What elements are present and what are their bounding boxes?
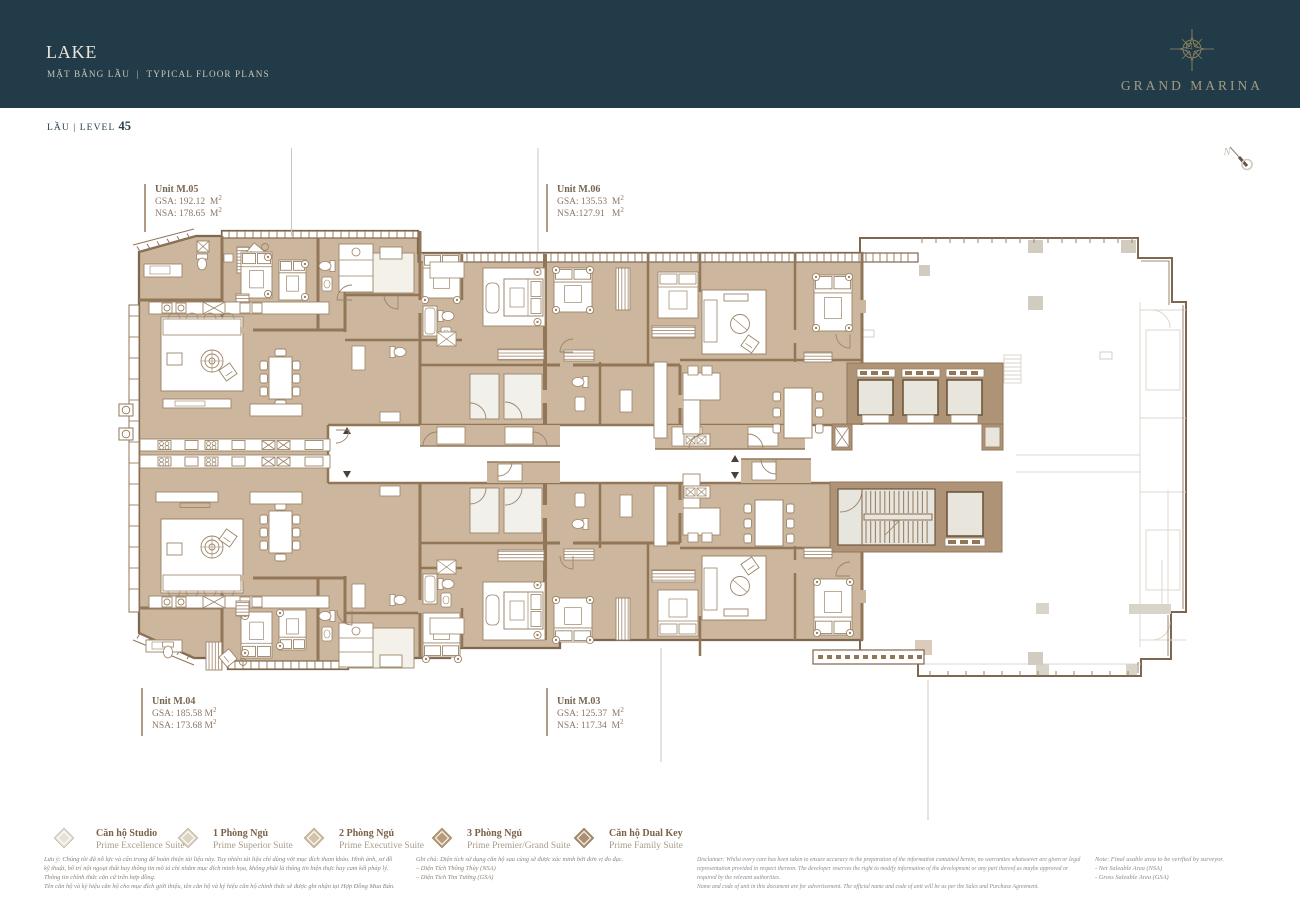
svg-text:Căn hộ Dual Key: Căn hộ Dual Key: [609, 828, 683, 839]
svg-text:Name and code of unit in this: Name and code of unit in this document a…: [696, 883, 1039, 890]
svg-text:2 Phòng Ngủ: 2 Phòng Ngủ: [339, 828, 394, 839]
svg-text:Unit M.05: Unit M.05: [155, 184, 198, 195]
svg-text:Prime Executive Suite: Prime Executive Suite: [339, 841, 424, 851]
svg-text:1 Phòng Ngủ: 1 Phòng Ngủ: [213, 828, 268, 839]
svg-text:kỹ thuật, bố trí nội ngoại thấ: kỹ thuật, bố trí nội ngoại thất hay thôn…: [44, 865, 389, 872]
svg-text:Unit M.06: Unit M.06: [557, 184, 600, 195]
svg-text:Unit M.03: Unit M.03: [557, 696, 600, 707]
svg-text:– Diện Tích Tim Tường (GSA): – Diện Tích Tim Tường (GSA): [415, 874, 493, 881]
svg-text:Note: Final usable area to be: Note: Final usable area to be verified b…: [1094, 856, 1224, 863]
svg-text:representation provided in res: representation provided in respect there…: [697, 865, 1069, 872]
svg-text:MẶT BẰNG LẦU | TYPICAL FLOOR: MẶT BẰNG LẦU | TYPICAL FLOOR PLANS: [47, 69, 270, 79]
svg-text:Prime Excellence Suite: Prime Excellence Suite: [96, 841, 185, 851]
svg-text:Disclaimer: Whilst every care: Disclaimer: Whilst every care has been t…: [696, 856, 1081, 863]
svg-text:Unit M.04: Unit M.04: [152, 696, 195, 707]
svg-text:Prime Family Suite: Prime Family Suite: [609, 841, 683, 851]
svg-text:– Diện Tích Thông Thủy (NSA): – Diện Tích Thông Thủy (NSA): [415, 865, 496, 872]
svg-text:- Gross Saleable Area (GSA): - Gross Saleable Area (GSA): [1095, 874, 1169, 881]
svg-text:required by the relevant autho: required by the relevant authorities.: [697, 875, 780, 881]
svg-text:Căn hộ Studio: Căn hộ Studio: [96, 828, 157, 839]
svg-text:Lưu ý: Chúng tôi đã nỗ lực và: Lưu ý: Chúng tôi đã nỗ lực và cẩn trọng …: [43, 856, 392, 863]
svg-text:Prime Superior Suite: Prime Superior Suite: [213, 841, 293, 851]
svg-text:Ghi chú: Diện tích sử dụng căn: Ghi chú: Diện tích sử dụng căn hộ sau cù…: [416, 856, 624, 863]
svg-text:Prime Premier/Grand Suite: Prime Premier/Grand Suite: [467, 841, 570, 851]
svg-text:Tên căn hộ và ký hiệu căn hộ c: Tên căn hộ và ký hiệu căn hộ cho mục đíc…: [44, 883, 395, 890]
svg-text:GRAND MARINA: GRAND MARINA: [1121, 78, 1263, 93]
svg-text:3 Phòng Ngủ: 3 Phòng Ngủ: [467, 828, 522, 839]
svg-text:N: N: [1223, 147, 1232, 158]
svg-text:- Net Saleable Area (NSA): - Net Saleable Area (NSA): [1095, 865, 1162, 872]
svg-text:Thông tin chính thức căn cứ tr: Thông tin chính thức căn cứ trên hợp đồn…: [44, 874, 156, 881]
svg-text:LAKE: LAKE: [46, 42, 97, 62]
